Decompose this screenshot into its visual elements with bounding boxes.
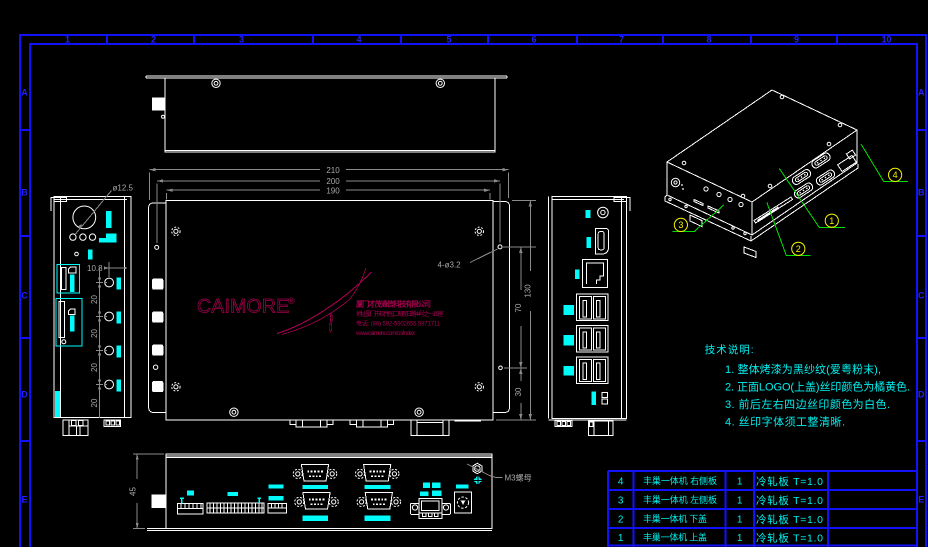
svg-text:1. 整体烤漆为黑纱纹(爱粤粉末),: 1. 整体烤漆为黑纱纹(爱粤粉末), — [725, 362, 881, 376]
svg-text:30: 30 — [514, 387, 523, 396]
svg-text:ø12.5: ø12.5 — [113, 184, 134, 193]
svg-text:7: 7 — [619, 35, 624, 45]
svg-text:E: E — [21, 495, 27, 505]
svg-text:®: ® — [288, 296, 295, 306]
svg-text:10.8: 10.8 — [87, 264, 103, 273]
svg-text:技术说明:: 技术说明: — [705, 343, 754, 356]
svg-text:C: C — [918, 291, 925, 301]
svg-text:2: 2 — [796, 244, 801, 254]
svg-text:2: 2 — [151, 35, 156, 45]
svg-text:丰巢一体机 左侧板: 丰巢一体机 左侧板 — [643, 494, 717, 505]
svg-text:C: C — [21, 291, 28, 301]
svg-text:冷轧板 T=1.0: 冷轧板 T=1.0 — [756, 475, 823, 488]
svg-text:冷轧板 T=1.0: 冷轧板 T=1.0 — [756, 513, 823, 526]
svg-text:20: 20 — [90, 329, 99, 338]
svg-text:20: 20 — [90, 295, 99, 304]
svg-text:丰巢一体机 上盖: 丰巢一体机 上盖 — [643, 531, 707, 542]
svg-text:210: 210 — [326, 166, 340, 175]
svg-text:1: 1 — [737, 533, 743, 544]
svg-text:B: B — [918, 188, 925, 198]
svg-text:地址: 厦门市软件园二期观日路44号之一206室: 地址: 厦门市软件园二期观日路44号之一206室 — [356, 310, 444, 318]
svg-text:200: 200 — [326, 177, 340, 186]
svg-text:D: D — [21, 390, 28, 400]
svg-text:20: 20 — [90, 398, 99, 407]
svg-text:www.caimore.com/cn/index: www.caimore.com/cn/index — [355, 331, 415, 337]
svg-text:45: 45 — [128, 487, 137, 496]
svg-text:4: 4 — [356, 35, 361, 45]
svg-text:70: 70 — [514, 303, 523, 312]
svg-text:3: 3 — [239, 35, 244, 45]
svg-text:190: 190 — [326, 186, 340, 195]
svg-text:3: 3 — [678, 220, 683, 230]
svg-text:130: 130 — [524, 284, 533, 298]
svg-text:1: 1 — [618, 533, 624, 544]
svg-text:1: 1 — [737, 515, 743, 526]
svg-text:4: 4 — [618, 477, 624, 488]
svg-text:1: 1 — [737, 477, 743, 488]
svg-text:2: 2 — [618, 515, 624, 526]
svg-text:6: 6 — [531, 35, 536, 45]
svg-text:4. 丝印字体须工整清晰.: 4. 丝印字体须工整清晰. — [725, 414, 845, 428]
svg-text:4: 4 — [893, 170, 898, 180]
svg-text:8: 8 — [706, 35, 711, 45]
svg-text:1: 1 — [737, 496, 743, 507]
svg-text:9: 9 — [794, 35, 799, 45]
svg-text:E: E — [918, 495, 924, 505]
svg-text:丰巢一体机 下盖: 丰巢一体机 下盖 — [643, 513, 707, 524]
svg-text:A: A — [21, 88, 28, 98]
svg-text:D: D — [918, 390, 925, 400]
svg-text:4-ø3.2: 4-ø3.2 — [438, 261, 462, 270]
svg-text:1: 1 — [65, 35, 70, 45]
svg-text:3: 3 — [618, 496, 624, 507]
svg-text:M3螺母: M3螺母 — [505, 473, 532, 483]
svg-text:10: 10 — [881, 35, 891, 45]
svg-text:CAIMORE: CAIMORE — [197, 295, 289, 317]
svg-text:1: 1 — [829, 216, 834, 226]
svg-text:2. 正面LOGO(上盖)丝印颜色为橘黄色.: 2. 正面LOGO(上盖)丝印颜色为橘黄色. — [725, 379, 910, 393]
svg-text:3. 前后左右四边丝印颜色为白色.: 3. 前后左右四边丝印颜色为白色. — [725, 397, 890, 411]
svg-text:冷轧板 T=1.0: 冷轧板 T=1.0 — [756, 494, 823, 507]
svg-text:B: B — [21, 188, 28, 198]
svg-text:5: 5 — [446, 35, 451, 45]
svg-text:厦门才茂通信科技有限公司: 厦门才茂通信科技有限公司 — [355, 299, 431, 308]
svg-text:电话: (86) 592-5902655 5971711: 电话: (86) 592-5902655 5971711 — [356, 320, 441, 328]
svg-text:20: 20 — [90, 363, 99, 372]
svg-text:A: A — [918, 88, 925, 98]
svg-text:丰巢一体机 右侧板: 丰巢一体机 右侧板 — [643, 475, 717, 486]
svg-text:冷轧板 T=1.0: 冷轧板 T=1.0 — [756, 531, 823, 544]
